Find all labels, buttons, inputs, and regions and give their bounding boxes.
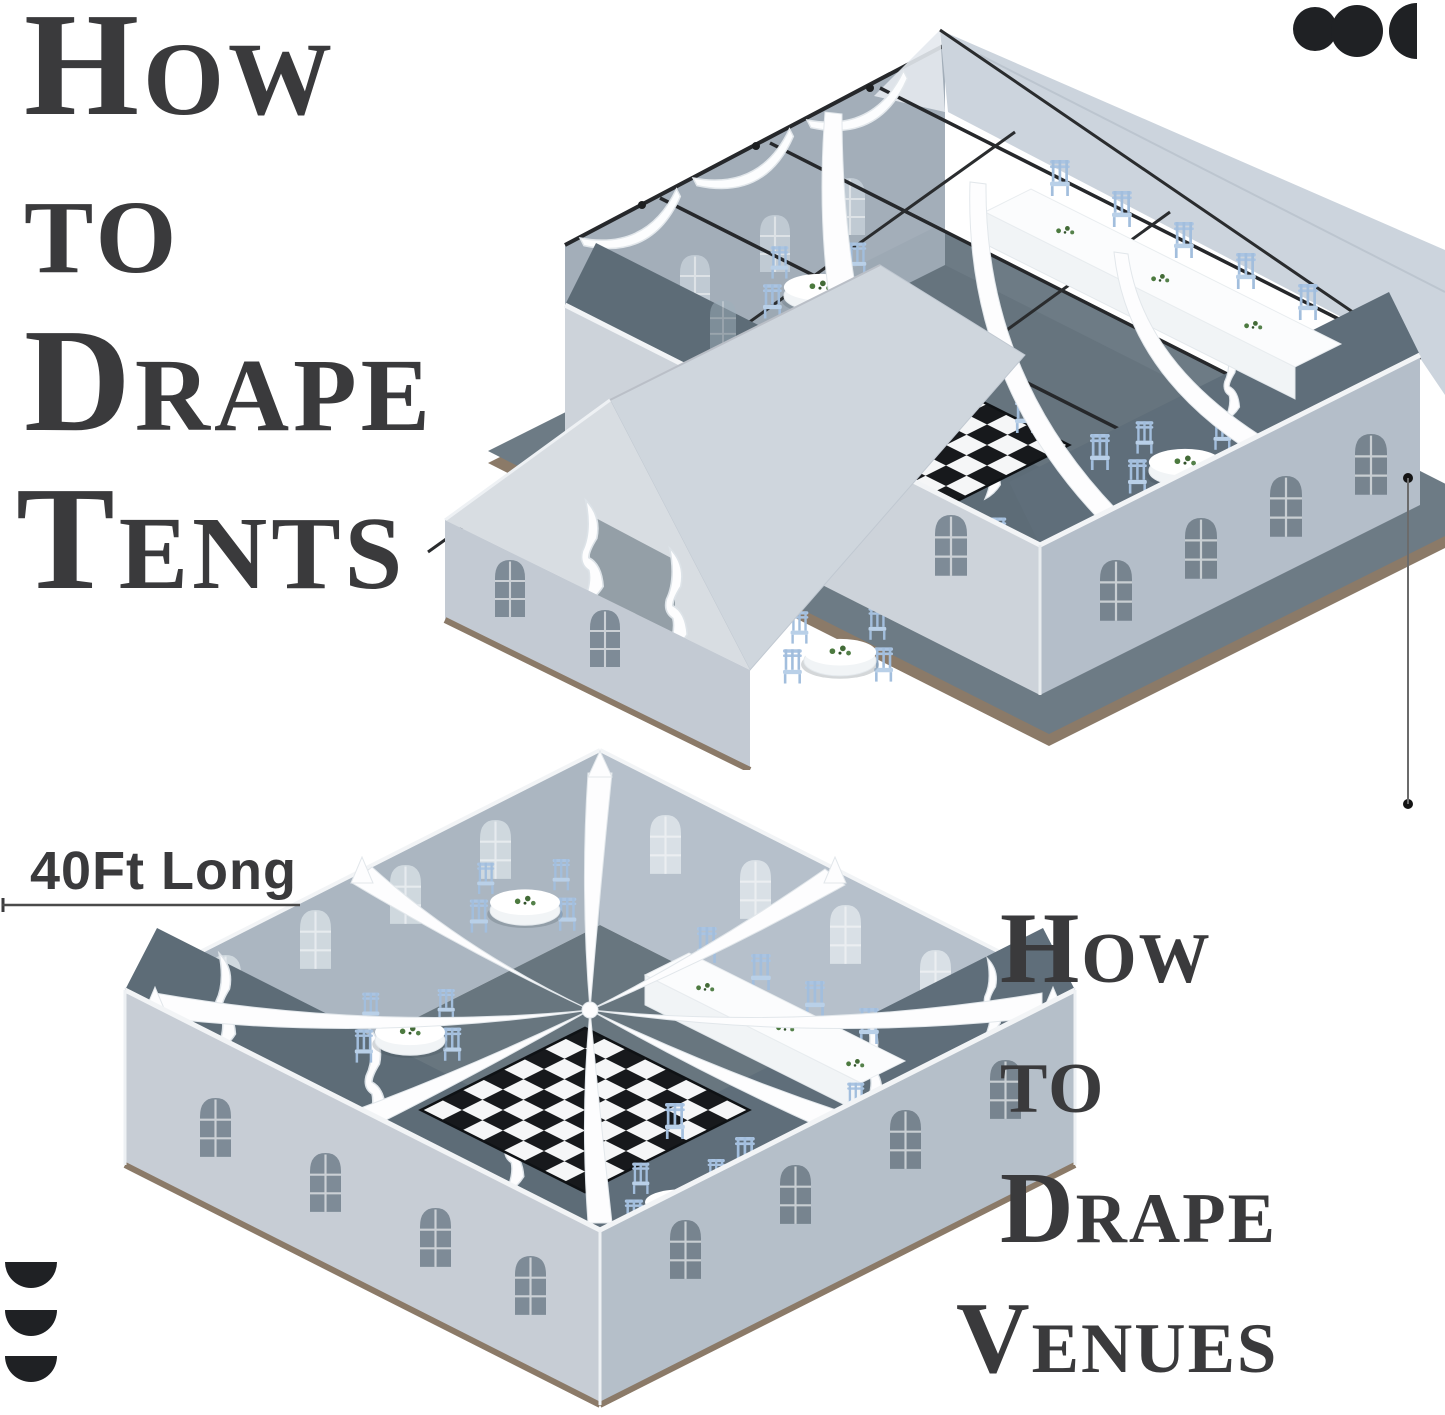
- title-line: How: [24, 0, 434, 144]
- length-dimension-label: 40Ft Long: [30, 840, 297, 902]
- title-line: Tents: [16, 460, 434, 618]
- title-how-to-drape-tents: How to Drape Tents: [24, 0, 434, 618]
- title-line: to: [24, 144, 434, 302]
- title-line: Drape: [24, 302, 434, 460]
- title-line: How: [1000, 884, 1278, 1014]
- tent-illustration: [280, 0, 1445, 770]
- brand-logo-icon: [1288, 0, 1445, 66]
- title-how-to-drape-venues: How to Drape Venues: [1000, 884, 1278, 1404]
- title-line: to: [1000, 1014, 1278, 1144]
- title-line: Drape: [1000, 1144, 1278, 1274]
- height-dimension-line: [1396, 466, 1420, 816]
- brand-logo-stack-icon: [2, 1252, 72, 1397]
- infographic-canvas: How to Drape Tents How to Drape Venues 4…: [0, 0, 1445, 1415]
- length-leader-line: [0, 896, 310, 916]
- title-line: Venues: [956, 1274, 1278, 1404]
